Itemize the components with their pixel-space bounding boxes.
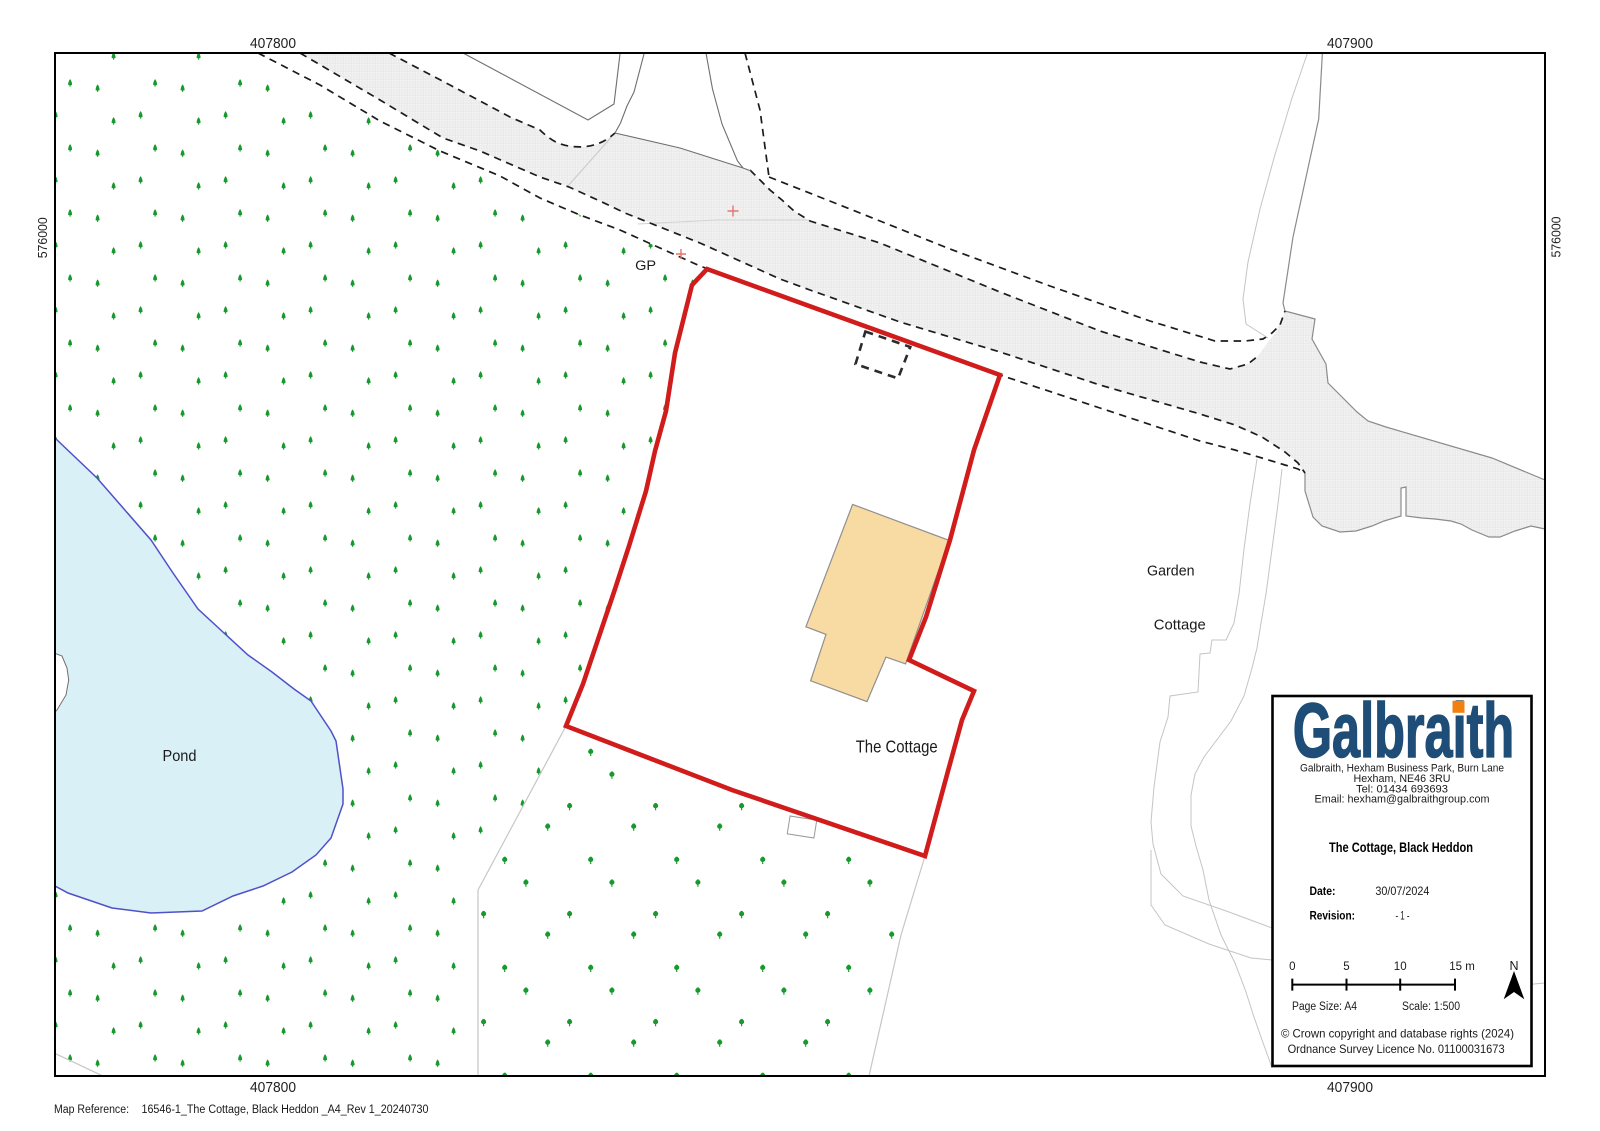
svg-text:Scale: 1:500: Scale: 1:500	[1402, 1001, 1460, 1013]
svg-text:Garden: Garden	[1147, 563, 1195, 580]
svg-text:407900: 407900	[1327, 1080, 1373, 1096]
svg-text:Map Reference:: Map Reference:	[54, 1104, 129, 1116]
svg-text:GP: GP	[635, 258, 656, 273]
svg-text:- 1 -: - 1 -	[1396, 909, 1410, 923]
svg-text:Ordnance Survey Licence No. 01: Ordnance Survey Licence No. 01100031673	[1288, 1042, 1505, 1056]
svg-text:407800: 407800	[250, 36, 296, 52]
svg-text:The Cottage: The Cottage	[856, 737, 938, 757]
svg-text:Galbraith: Galbraith	[1293, 687, 1514, 773]
svg-text:5: 5	[1343, 961, 1349, 973]
svg-text:407900: 407900	[1327, 36, 1373, 52]
svg-text:N: N	[1509, 959, 1518, 973]
svg-text:576000: 576000	[1549, 217, 1564, 258]
svg-text:Date:: Date:	[1310, 884, 1336, 898]
svg-text:Page Size: A4: Page Size: A4	[1292, 1001, 1358, 1013]
svg-text:Revision:: Revision:	[1310, 909, 1356, 923]
svg-text:10: 10	[1394, 961, 1407, 973]
svg-text:0: 0	[1289, 961, 1295, 973]
svg-text:30/07/2024: 30/07/2024	[1375, 884, 1429, 898]
svg-text:Email: hexham@galbraithgroup.c: Email: hexham@galbraithgroup.com	[1315, 794, 1490, 806]
svg-text:407800: 407800	[250, 1080, 296, 1096]
svg-text:576000: 576000	[35, 217, 50, 258]
svg-text:Pond: Pond	[163, 748, 197, 765]
svg-text:15 m: 15 m	[1449, 961, 1475, 973]
svg-text:Cottage: Cottage	[1154, 617, 1206, 634]
svg-text:The Cottage, Black Heddon: The Cottage, Black Heddon	[1329, 839, 1473, 855]
svg-text:© Crown copyright and database: © Crown copyright and database rights (2…	[1281, 1027, 1514, 1041]
svg-text:16546-1_The Cottage, Black Hed: 16546-1_The Cottage, Black Heddon _A4_Re…	[142, 1104, 429, 1116]
